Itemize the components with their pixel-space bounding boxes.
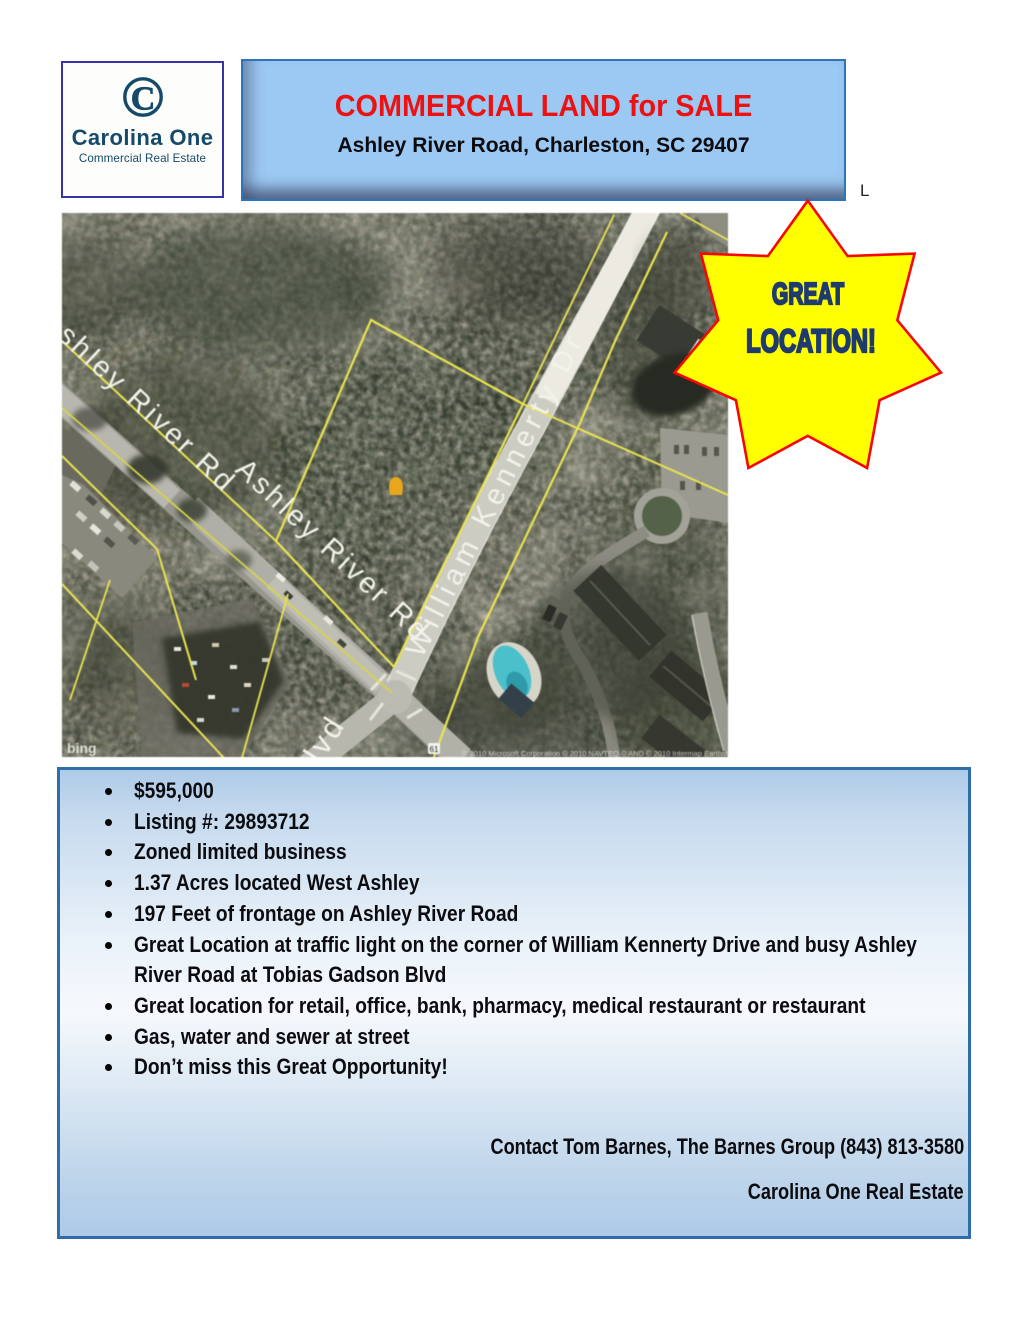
svg-text:© 2010 Microsoft Corporation: © 2010 Microsoft Corporation © 2010 NAVT… (462, 749, 728, 757)
svg-text:bing: bing (67, 740, 97, 756)
svg-text:GREAT: GREAT (772, 276, 844, 311)
svg-text:C: C (131, 81, 156, 118)
svg-text:LOCATION!: LOCATION! (746, 324, 876, 359)
svg-text:61: 61 (430, 745, 439, 754)
